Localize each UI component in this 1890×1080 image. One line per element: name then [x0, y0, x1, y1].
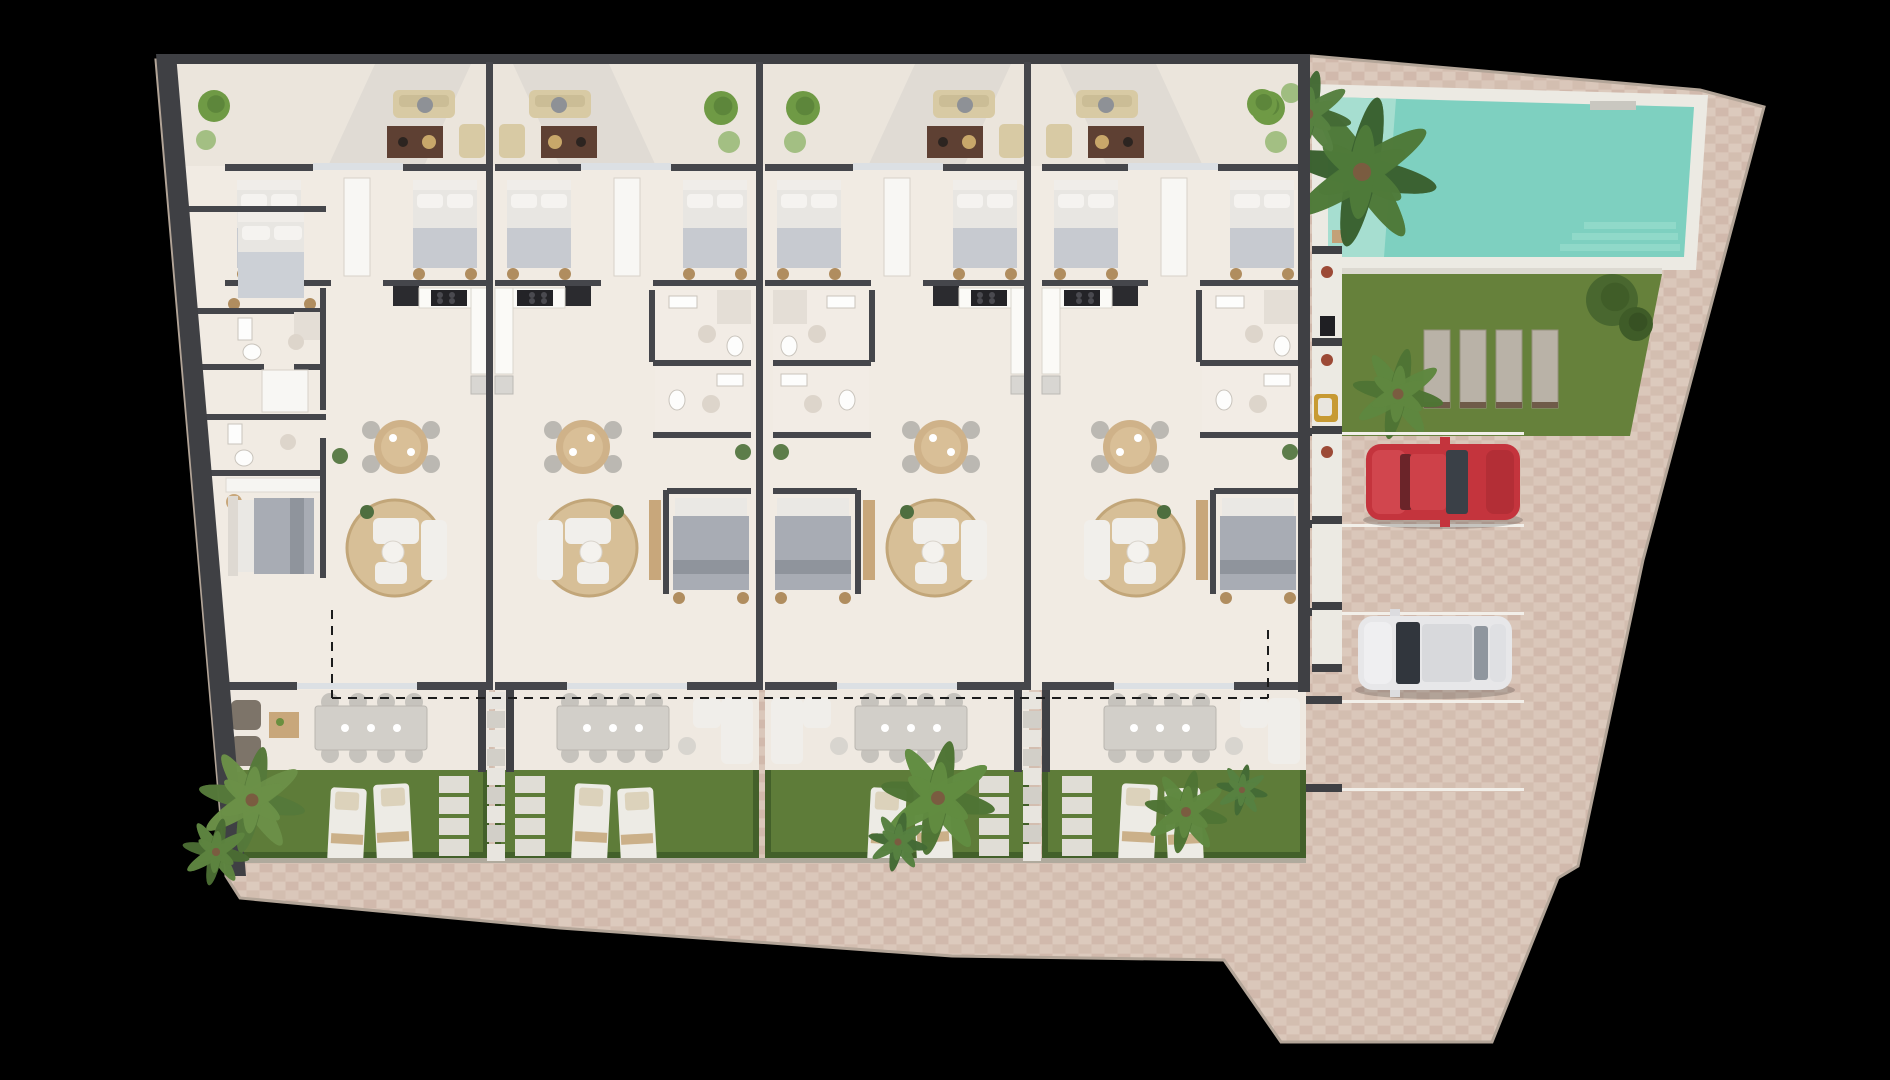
palm-trunk — [1353, 163, 1371, 181]
stair-step — [487, 806, 505, 823]
stepping-stone — [979, 839, 1009, 856]
patio-wall — [1312, 246, 1342, 254]
door-arc — [698, 325, 716, 343]
bed-blanket — [1230, 228, 1294, 268]
stair-step — [1023, 844, 1041, 861]
wall — [495, 682, 567, 690]
coffee-table-round — [580, 541, 602, 563]
bed-headboard — [1230, 180, 1294, 190]
bed-blanket — [777, 228, 841, 268]
stair-step — [487, 730, 505, 747]
wall — [1200, 280, 1306, 286]
sink — [827, 296, 855, 308]
glass-door — [581, 163, 671, 170]
burner — [989, 292, 995, 298]
burner — [1088, 298, 1094, 304]
outdoor-sofa-throw — [417, 97, 433, 113]
bed-pillow — [1088, 194, 1114, 208]
white-car-mirror — [1390, 690, 1400, 697]
toilet — [669, 390, 685, 410]
stair-step — [1023, 730, 1041, 747]
wall — [495, 164, 581, 171]
stair-step — [487, 692, 505, 709]
patio-wall — [1312, 602, 1342, 610]
stepping-stone — [439, 839, 469, 856]
bedside-stool — [507, 268, 519, 280]
master-bed-pillows — [675, 498, 747, 516]
white-car-windshield — [1396, 622, 1420, 684]
burner — [449, 298, 455, 304]
plate — [1134, 434, 1142, 442]
plate — [407, 448, 415, 456]
closet — [884, 178, 910, 276]
toilet — [243, 344, 261, 360]
corner-tree — [1256, 94, 1273, 111]
stepping-stone — [1062, 839, 1092, 856]
outdoor-sofa-white — [1268, 698, 1300, 764]
pool-ledge — [1590, 101, 1636, 110]
bed-pillow — [987, 194, 1013, 208]
lounger-strap — [575, 831, 607, 843]
sink — [781, 374, 807, 386]
dining-table-top — [1110, 427, 1150, 467]
burner — [437, 292, 443, 298]
kitchen-block — [393, 286, 419, 306]
side-patio-strip — [1312, 246, 1342, 672]
garden-parapet — [238, 858, 1306, 863]
bedside-stool — [829, 268, 841, 280]
plate — [881, 724, 889, 732]
bedside-stool — [465, 268, 477, 280]
sofa — [1084, 520, 1110, 580]
lounger-strap — [331, 833, 363, 845]
glass-door — [297, 683, 417, 689]
terrace-bush — [784, 131, 806, 153]
lounger-foot — [1460, 402, 1486, 408]
white-car-rear-glass — [1474, 626, 1488, 680]
outdoor-armchair-brown — [231, 700, 261, 730]
wall — [320, 438, 326, 578]
wall — [383, 280, 489, 286]
patio-plant-pot — [1321, 446, 1333, 458]
side-table-round — [830, 737, 848, 755]
wall — [417, 682, 489, 690]
bedside-stool — [559, 268, 571, 280]
bed-pillow — [417, 194, 443, 208]
wall — [773, 360, 871, 366]
master-bed — [254, 498, 314, 574]
party-wall — [1024, 62, 1031, 690]
stepping-stone — [439, 776, 469, 793]
bed-pillow — [957, 194, 983, 208]
cooktop — [517, 290, 553, 306]
coffee-table-round — [922, 541, 944, 563]
lawn-tree — [1601, 283, 1630, 312]
plate — [1182, 724, 1190, 732]
plate — [929, 434, 937, 442]
burner — [1076, 292, 1082, 298]
red-car-trunk — [1486, 450, 1514, 514]
party-wall — [756, 62, 763, 690]
sun-deck-lawn-area — [1316, 268, 1662, 441]
patio-sofa-cushion — [1318, 398, 1332, 416]
wall — [773, 432, 871, 438]
shower — [717, 290, 751, 324]
bed-blanket — [683, 228, 747, 268]
table-deco — [276, 718, 284, 726]
plate — [587, 434, 595, 442]
stair-step — [487, 825, 505, 842]
door-arc — [804, 395, 822, 413]
burner — [989, 298, 995, 304]
toilet — [1216, 390, 1232, 410]
sideboard — [1196, 500, 1208, 580]
wall — [1200, 432, 1298, 438]
stair-step — [1023, 787, 1041, 804]
dining-table-top — [921, 427, 961, 467]
bed-pillow — [241, 194, 267, 208]
coffee-table-dish — [398, 137, 408, 147]
plant — [332, 448, 348, 464]
plate — [609, 724, 617, 732]
unit-2-garden — [495, 684, 759, 863]
burner — [449, 292, 455, 298]
stepping-stone — [515, 797, 545, 814]
patio-wall — [1312, 338, 1342, 346]
bed-pillow — [271, 194, 297, 208]
palm-trunk — [246, 794, 259, 807]
door-arc — [1249, 395, 1267, 413]
white-car-roof — [1422, 624, 1472, 682]
wardrobe — [226, 478, 322, 492]
master-bed-pillows — [777, 498, 849, 516]
terrace-tree — [207, 95, 225, 113]
plate — [389, 434, 397, 442]
lawn-edge — [1316, 268, 1662, 274]
wall — [855, 490, 861, 594]
stepping-stone — [515, 839, 545, 856]
palm-trunk — [1239, 787, 1245, 793]
bed-blanket — [413, 228, 477, 268]
bedside-stool — [1106, 268, 1118, 280]
coffee-table-bowl — [962, 135, 976, 149]
bedside-stool — [1282, 268, 1294, 280]
kitchen-block — [565, 286, 591, 306]
rug-plant — [360, 505, 374, 519]
sofa — [537, 520, 563, 580]
outdoor-sofa-white — [771, 698, 803, 764]
door-arc — [1245, 325, 1263, 343]
stepping-stone — [979, 776, 1009, 793]
sun-lounger — [1532, 330, 1558, 408]
sofa-chaise — [577, 562, 609, 584]
wall — [1234, 682, 1306, 690]
bed-blanket — [507, 228, 571, 268]
garden-hedge — [1300, 770, 1306, 862]
bed-pillow — [447, 194, 473, 208]
toilet — [235, 450, 253, 466]
sink — [1264, 374, 1290, 386]
lounger-foot — [1496, 402, 1522, 408]
plate — [393, 724, 401, 732]
stair-step — [487, 768, 505, 785]
outdoor-armchair — [1046, 124, 1072, 158]
wall — [653, 280, 759, 286]
master-bed-throw — [775, 560, 851, 574]
plate — [933, 724, 941, 732]
bed-pillow — [1058, 194, 1084, 208]
wall — [653, 360, 751, 366]
palm-trunk — [1181, 807, 1191, 817]
bed-pillow — [511, 194, 537, 208]
rug-plant — [900, 505, 914, 519]
sink — [1216, 296, 1244, 308]
toilet — [727, 336, 743, 356]
wall — [773, 488, 857, 494]
pool-step — [1572, 233, 1678, 240]
toilet — [1274, 336, 1290, 356]
sofa — [565, 518, 611, 544]
terrace-bush — [718, 131, 740, 153]
parking-line — [1332, 788, 1524, 791]
coffee-table-bowl — [548, 135, 562, 149]
kitchen-block — [933, 286, 959, 306]
master-bed — [1220, 516, 1296, 590]
patio-grill — [1320, 316, 1335, 336]
stepping-stone — [439, 818, 469, 835]
burner — [437, 298, 443, 304]
bed-headboard — [413, 180, 477, 190]
wall — [1042, 682, 1114, 690]
rug-plant — [610, 505, 624, 519]
side-table-round — [678, 737, 696, 755]
sideboard — [649, 500, 661, 580]
burner — [529, 298, 535, 304]
fridge — [1042, 376, 1060, 394]
white-car-mirror — [1390, 609, 1400, 616]
sofa — [373, 518, 419, 544]
garden-hedge — [753, 770, 759, 862]
red-car-mirror — [1440, 520, 1450, 527]
stair-step — [1023, 711, 1041, 728]
stair-step — [487, 749, 505, 766]
pool-step — [1560, 244, 1680, 251]
patio-plant-pot — [1321, 266, 1333, 278]
wall — [1042, 280, 1148, 286]
bed-blanket — [1054, 228, 1118, 268]
burner — [541, 298, 547, 304]
red-car-mirror — [1440, 437, 1450, 444]
master-bed — [673, 516, 749, 590]
door-arc — [280, 434, 296, 450]
stepping-stone — [1062, 818, 1092, 835]
lounger-pillow — [579, 787, 604, 806]
bedside-stool — [673, 592, 685, 604]
bed-headboard — [777, 180, 841, 190]
coffee-table-bowl — [422, 135, 436, 149]
wall — [765, 280, 871, 286]
closet — [262, 370, 308, 412]
bed-pillow — [274, 226, 302, 240]
terrace-bush — [196, 130, 216, 150]
bedside-stool — [1220, 592, 1232, 604]
shower — [1264, 290, 1298, 324]
bed-pillow — [1264, 194, 1290, 208]
pool-step — [1584, 222, 1676, 229]
glass-door — [1114, 683, 1234, 689]
sun-lounger — [1460, 330, 1486, 408]
wall — [320, 288, 326, 410]
red-car-roof — [1410, 454, 1446, 510]
stair-step — [487, 711, 505, 728]
dining-table-top — [381, 427, 421, 467]
palm-trunk — [212, 848, 220, 856]
sofa — [1112, 518, 1158, 544]
outdoor-sofa-white — [1240, 698, 1268, 728]
lounger-strap — [621, 833, 653, 845]
wall — [667, 488, 751, 494]
stepping-stone — [1062, 776, 1092, 793]
glass-door — [853, 163, 943, 170]
outdoor-sofa-white — [803, 698, 831, 728]
bedside-stool — [735, 268, 747, 280]
burner — [1088, 292, 1094, 298]
palm-trunk — [1392, 388, 1403, 399]
floor-plan-canvas — [0, 0, 1890, 1080]
rug-plant — [1157, 505, 1171, 519]
coffee-table-round — [382, 541, 404, 563]
parking-line — [1332, 432, 1524, 435]
garden-hedge — [1042, 770, 1048, 862]
glass-door — [1128, 163, 1218, 170]
wall — [1042, 164, 1128, 171]
bed-headboard — [237, 180, 301, 190]
plate — [367, 724, 375, 732]
plate — [1116, 448, 1124, 456]
master-bed-pillows — [238, 500, 254, 572]
unit-4-garden — [1042, 684, 1306, 863]
side-table-round — [1225, 737, 1243, 755]
plate — [907, 724, 915, 732]
dining-table-top — [563, 427, 603, 467]
sofa — [421, 520, 447, 580]
terrace-bush — [1265, 131, 1287, 153]
closet — [344, 178, 370, 276]
outdoor-armchair — [499, 124, 525, 158]
sink — [717, 374, 743, 386]
burner — [541, 292, 547, 298]
master-bed — [775, 516, 851, 590]
wall — [765, 682, 837, 690]
bed-pillow — [541, 194, 567, 208]
sofa-chaise — [915, 562, 947, 584]
stepping-stone — [979, 818, 1009, 835]
wall — [225, 164, 313, 171]
wall — [495, 280, 601, 286]
plate — [635, 724, 643, 732]
wall — [687, 682, 759, 690]
wall — [765, 164, 853, 171]
burner — [529, 292, 535, 298]
wall — [1200, 360, 1298, 366]
party-wall — [486, 62, 493, 690]
burner — [977, 298, 983, 304]
lounger-pillow — [335, 791, 360, 810]
wall — [653, 432, 751, 438]
plate — [1156, 724, 1164, 732]
bedside-stool — [737, 592, 749, 604]
lawn-tree — [1629, 313, 1648, 332]
wall — [649, 290, 655, 362]
wall — [671, 164, 759, 171]
sun-lounger — [1496, 330, 1522, 408]
outdoor-armchair — [999, 124, 1025, 158]
stair-step — [487, 787, 505, 804]
master-bed-pillows — [1222, 498, 1294, 516]
sideboard — [863, 500, 875, 580]
wall — [225, 682, 297, 690]
stepping-stone — [515, 776, 545, 793]
side-table-wood — [269, 712, 299, 738]
patio-wall — [1312, 516, 1342, 524]
plate — [569, 448, 577, 456]
master-bed-throw — [290, 498, 304, 574]
wall — [1210, 490, 1216, 594]
wall — [1196, 290, 1202, 362]
bed-blanket — [238, 252, 304, 298]
garden-hedge — [765, 770, 771, 862]
toilet — [839, 390, 855, 410]
outdoor-armchair — [459, 124, 485, 158]
master-bed-throw — [1220, 560, 1296, 574]
lounger-foot — [1532, 402, 1558, 408]
plate — [341, 724, 349, 732]
outdoor-sofa-throw — [1098, 97, 1114, 113]
lounger-pillow — [381, 787, 406, 806]
wall — [923, 280, 1029, 286]
closet — [1161, 178, 1187, 276]
bed-pillow — [1234, 194, 1260, 208]
glass-door — [837, 683, 957, 689]
parking-divider — [1306, 784, 1342, 792]
bed-pillow — [242, 226, 270, 240]
gardens-band — [176, 684, 1306, 863]
patio-wall — [1312, 664, 1342, 672]
bedside-stool — [683, 268, 695, 280]
outdoor-sofa-white — [693, 698, 721, 728]
bedside-stool — [1230, 268, 1242, 280]
building-interior — [160, 62, 1306, 690]
plant — [735, 444, 751, 460]
terrace-tree — [796, 97, 815, 116]
outdoor-sofa-throw — [551, 97, 567, 113]
stair-step — [1023, 825, 1041, 842]
coffee-table-round — [1127, 541, 1149, 563]
sink — [238, 318, 252, 340]
bed-headboard — [953, 180, 1017, 190]
coffee-table-bowl — [1095, 135, 1109, 149]
cooktop — [971, 290, 1007, 306]
bedside-stool — [1005, 268, 1017, 280]
wall — [1214, 488, 1298, 494]
outdoor-sofa-throw — [957, 97, 973, 113]
door-arc — [702, 395, 720, 413]
wall — [176, 206, 326, 212]
sofa-chaise — [1124, 562, 1156, 584]
bedside-stool — [1284, 592, 1296, 604]
outer-wall-top — [158, 54, 1306, 64]
sink — [228, 424, 242, 444]
